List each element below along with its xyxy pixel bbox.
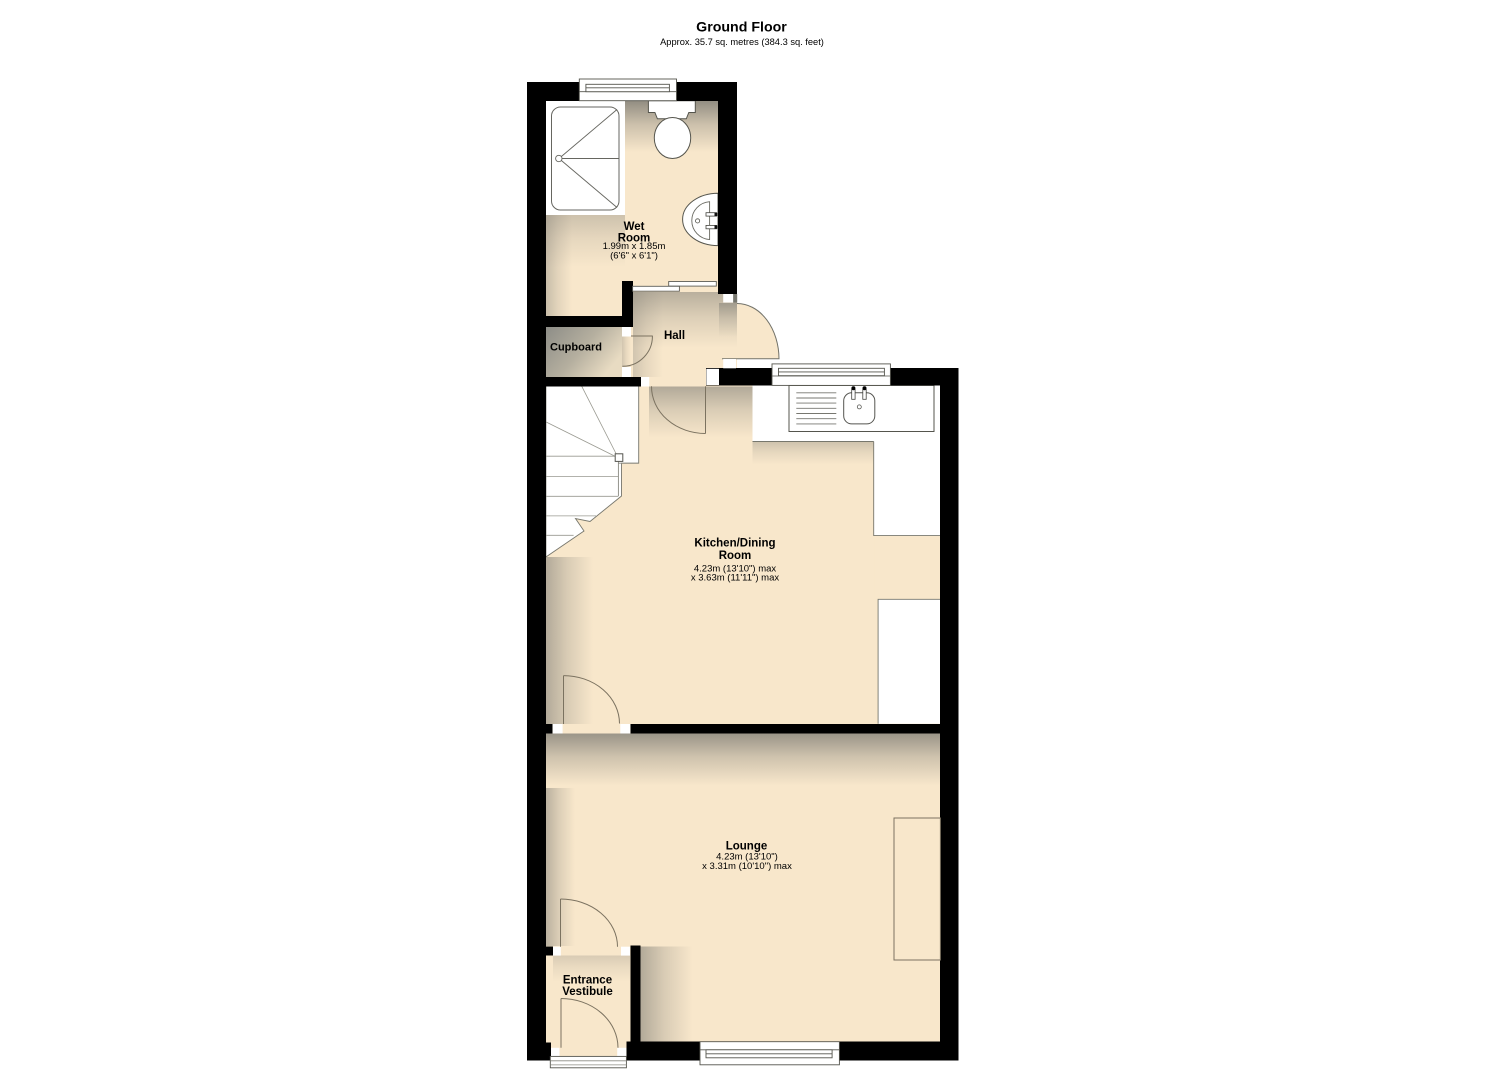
svg-text:x 3.31m (10'10") max: x 3.31m (10'10") max <box>702 861 792 872</box>
svg-text:Room: Room <box>719 550 752 562</box>
svg-text:Vestibule: Vestibule <box>562 986 613 998</box>
svg-text:Ground Floor: Ground Floor <box>696 20 787 36</box>
svg-text:Hall: Hall <box>664 330 685 342</box>
svg-text:Entrance: Entrance <box>563 975 612 987</box>
svg-text:Cupboard: Cupboard <box>550 341 602 353</box>
svg-text:Lounge: Lounge <box>726 840 768 852</box>
svg-text:Approx. 35.7 sq. metres (384.3: Approx. 35.7 sq. metres (384.3 sq. feet) <box>660 37 824 47</box>
svg-text:x 3.63m (11'11") max: x 3.63m (11'11") max <box>691 573 780 584</box>
svg-text:Kitchen/Dining: Kitchen/Dining <box>694 537 775 549</box>
svg-text:(6'6" x 6'1"): (6'6" x 6'1") <box>610 250 658 261</box>
svg-text:Wet: Wet <box>624 221 645 233</box>
